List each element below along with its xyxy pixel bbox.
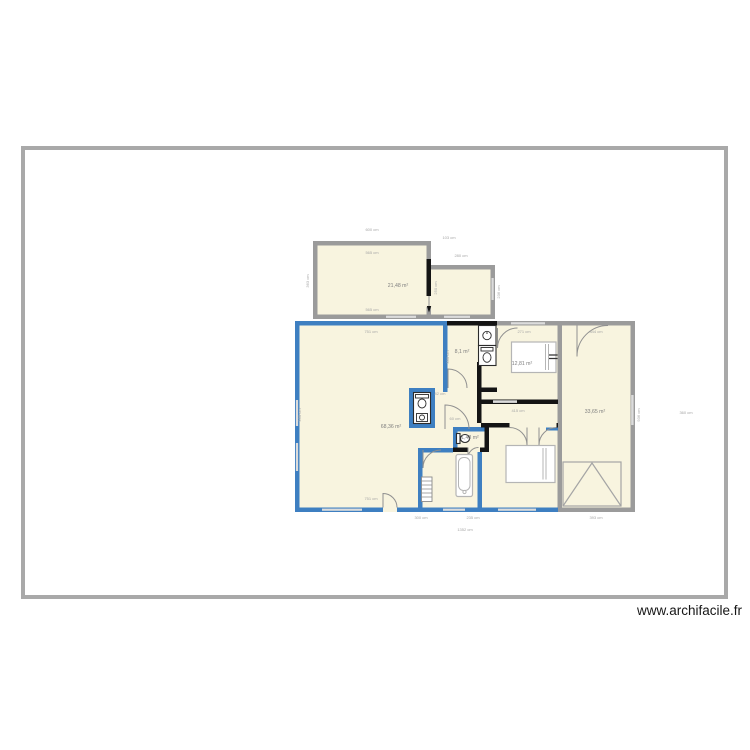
- dim-label: 103 cm: [442, 235, 456, 240]
- window[interactable]: [322, 509, 362, 511]
- dim-label: 565 cm: [365, 307, 379, 312]
- window[interactable]: [296, 443, 298, 471]
- wall[interactable]: [481, 400, 558, 405]
- wall[interactable]: [427, 265, 495, 270]
- wall[interactable]: [295, 321, 447, 326]
- sliding-door[interactable]: [493, 400, 517, 403]
- dim-label: 300 cm: [414, 515, 428, 520]
- dim-label: 271 cm: [517, 329, 531, 334]
- window[interactable]: [631, 395, 633, 425]
- wall[interactable]: [409, 388, 413, 428]
- plan-canvas: 68,36 m² 21,48 m² 8,1 m² 12,81 m² 33,65 …: [0, 0, 750, 750]
- wall[interactable]: [478, 452, 483, 512]
- dim-label: 60 cm: [450, 416, 462, 421]
- window[interactable]: [511, 322, 545, 324]
- wall[interactable]: [313, 241, 431, 246]
- area-label-wc: 1,43 m²: [461, 435, 479, 441]
- dim-label: 751 cm: [364, 329, 378, 334]
- area-label-chambre-est: 12,81 m²: [512, 361, 533, 367]
- bed-chambre-est[interactable]: [512, 342, 557, 373]
- faucet-icon: [486, 332, 488, 334]
- toilet-tank-icon: [457, 434, 461, 444]
- bed-chambre-sud[interactable]: [506, 446, 555, 483]
- wc-sejour-fixtures[interactable]: [414, 393, 431, 424]
- dim-label: 1352 cm: [457, 527, 473, 532]
- wall[interactable]: [313, 241, 318, 319]
- dim-label: 751 cm: [364, 496, 378, 501]
- watermark: www.archifacile.fr: [637, 603, 742, 618]
- dim-label: 344 cm: [589, 329, 603, 334]
- window[interactable]: [444, 316, 470, 318]
- dim-label: 82 cm: [435, 391, 447, 396]
- wc-column-fixtures[interactable]: [479, 326, 497, 366]
- wall[interactable]: [427, 259, 432, 296]
- area-label-cuisine: 8,1 m²: [455, 349, 470, 355]
- floor-plan: 68,36 m² 21,48 m² 8,1 m² 12,81 m² 33,65 …: [0, 0, 750, 750]
- dim-label: 235 cm: [466, 515, 480, 520]
- dim-label: 236 cm: [496, 285, 501, 299]
- dim-label: 415 cm: [511, 408, 525, 413]
- wall[interactable]: [558, 508, 635, 513]
- dim-label: 360 cm: [679, 410, 693, 415]
- wall[interactable]: [558, 321, 563, 512]
- area-label-sejour: 68,36 m²: [381, 424, 402, 430]
- dim-label: 280 cm: [454, 253, 468, 258]
- door-opening: [448, 388, 467, 393]
- area-label-chambre-nord: 21,48 m²: [388, 283, 409, 289]
- dim-label: 565 cm: [365, 250, 379, 255]
- wall[interactable]: [427, 241, 432, 259]
- wall[interactable]: [453, 427, 489, 432]
- sink-cabinet[interactable]: [479, 326, 497, 346]
- wall[interactable]: [478, 388, 498, 393]
- door-opening: [510, 423, 557, 428]
- dim-label: 600 cm: [365, 227, 379, 232]
- window[interactable]: [386, 316, 416, 318]
- dim-label: 363 cm: [305, 274, 310, 288]
- wall[interactable]: [477, 392, 482, 423]
- door-opening: [383, 508, 397, 513]
- window[interactable]: [443, 509, 465, 511]
- dim-label: 250 cm: [433, 281, 438, 295]
- window[interactable]: [498, 509, 536, 511]
- area-label-garage: 33,65 m²: [585, 409, 606, 415]
- dim-label: 393 cm: [589, 515, 603, 520]
- window[interactable]: [492, 278, 494, 300]
- dim-label: 330 cm: [445, 350, 450, 364]
- dim-label: 936 cm: [636, 408, 641, 422]
- wall[interactable]: [447, 321, 497, 326]
- dim-label: 930 cm: [297, 408, 302, 422]
